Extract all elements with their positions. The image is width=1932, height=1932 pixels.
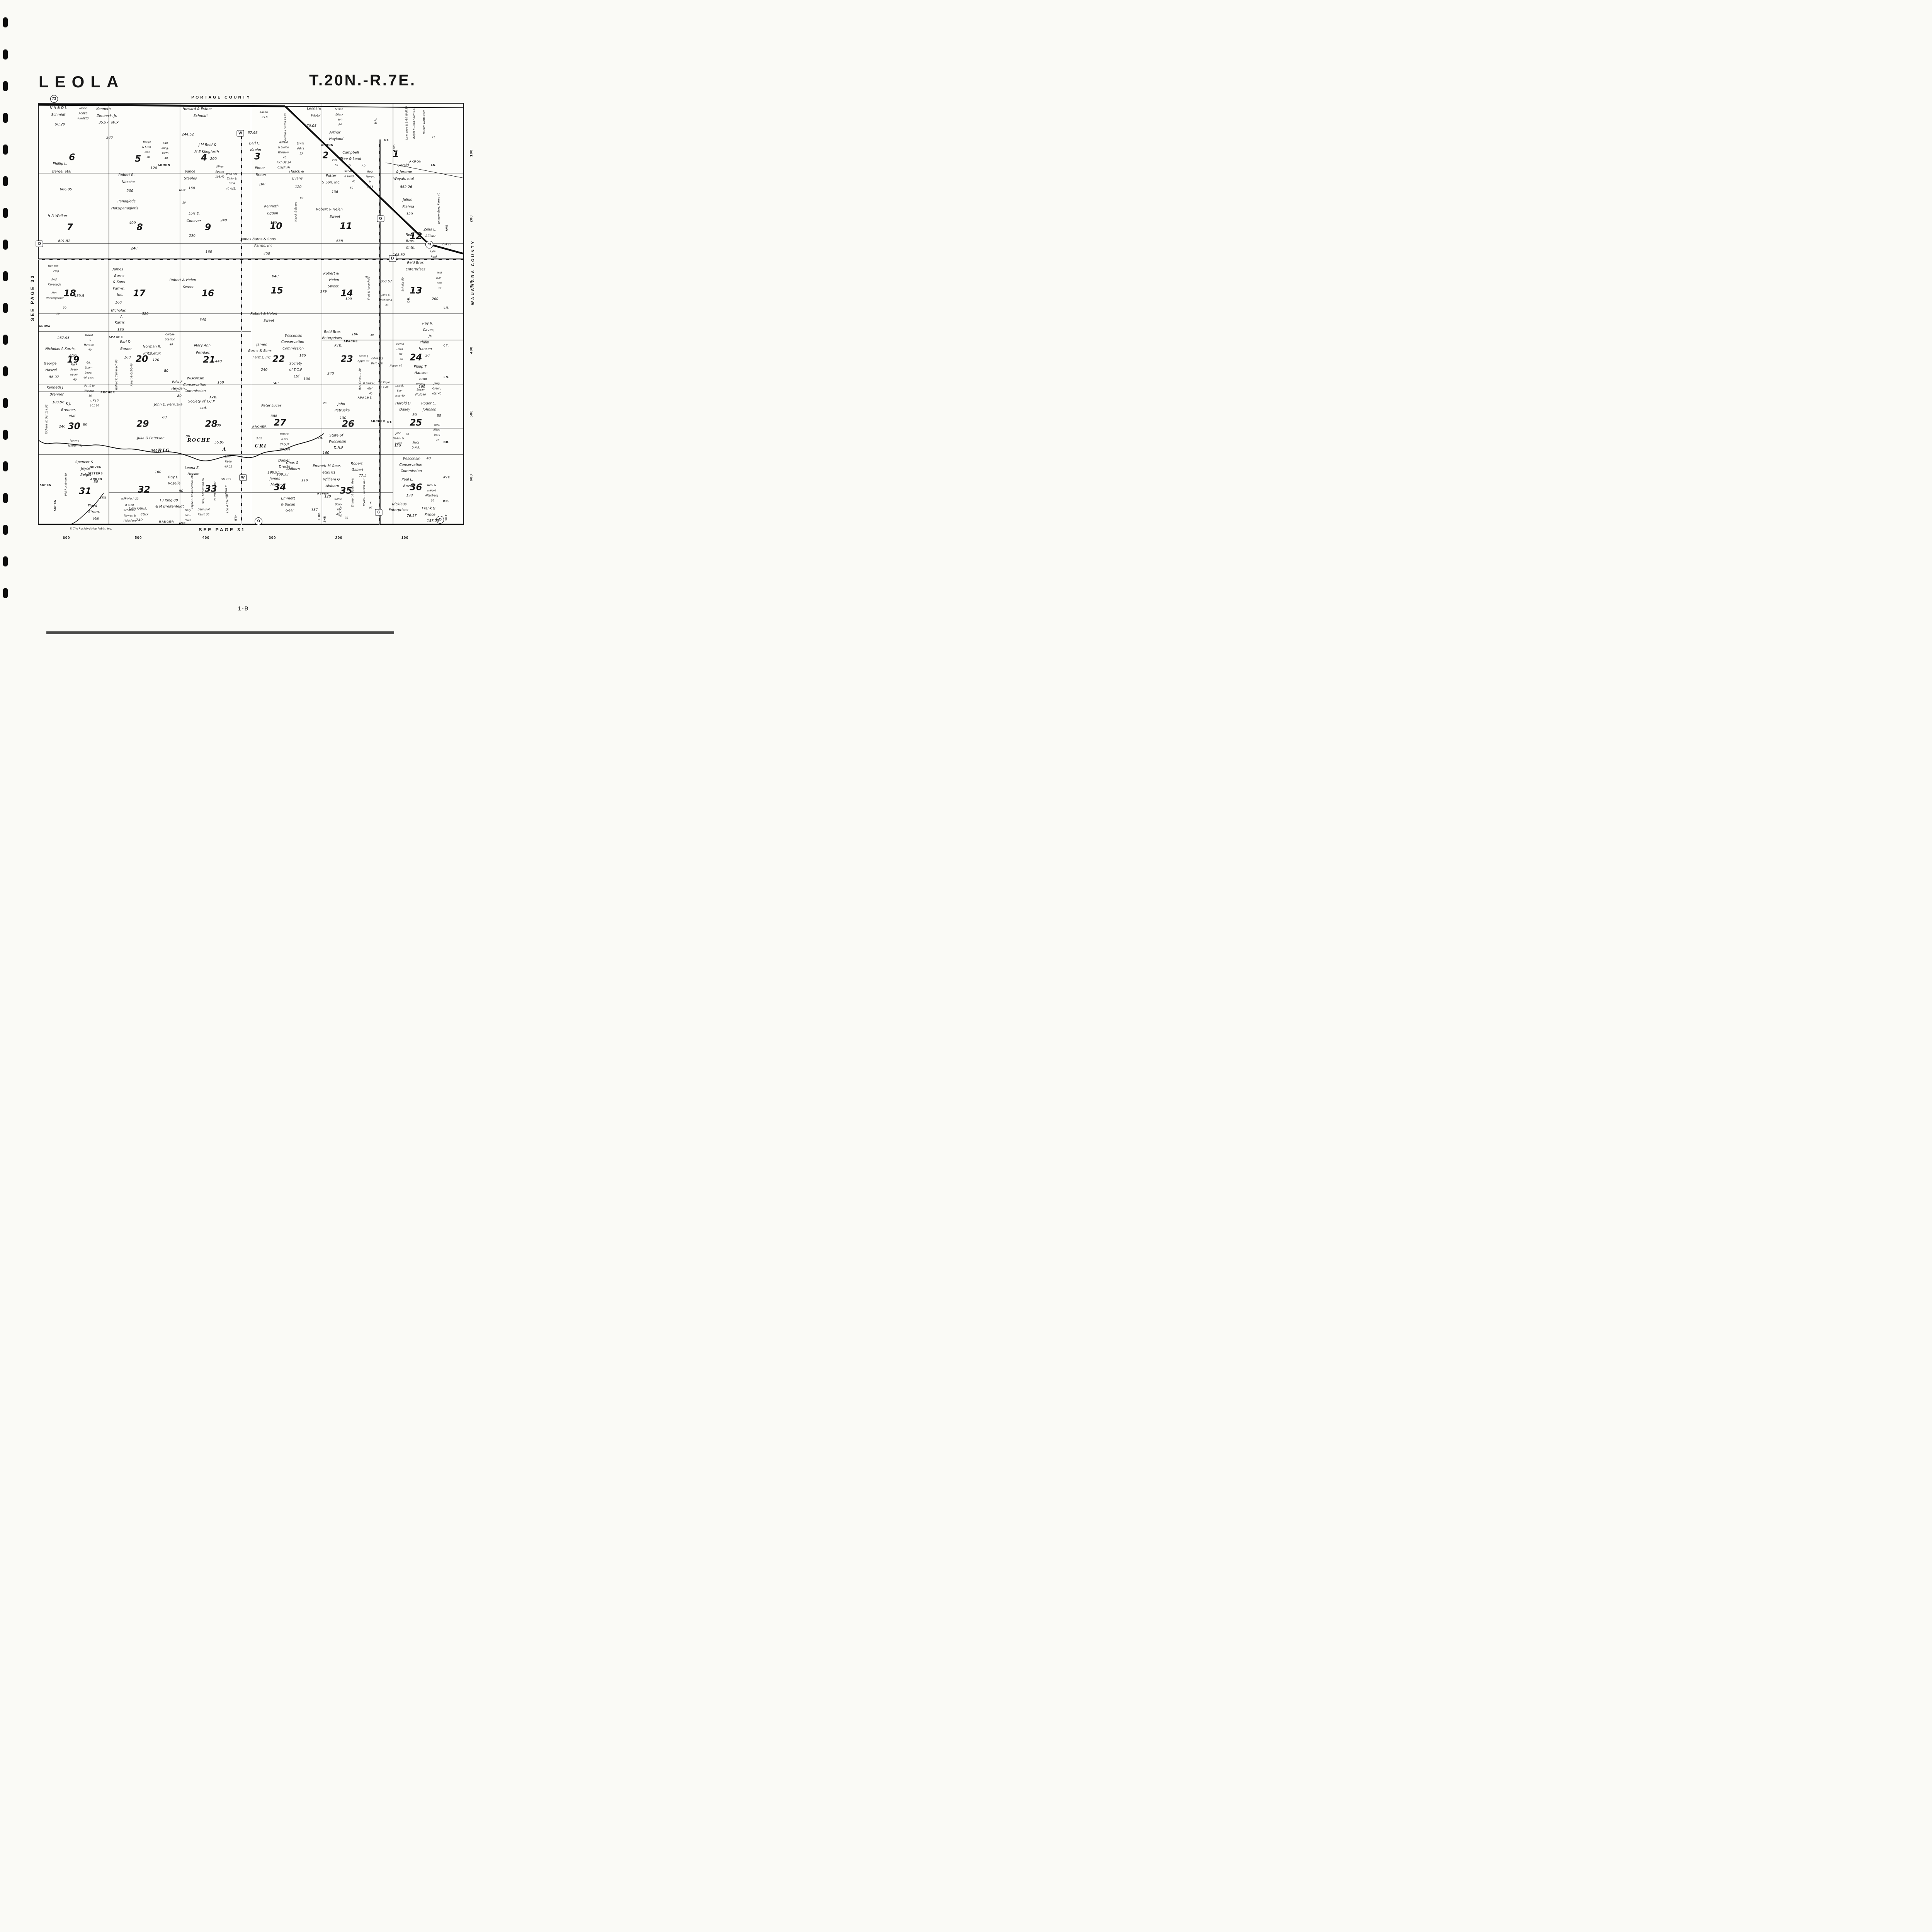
parcel-label: Schulte 59 [402, 277, 405, 291]
parcel-label: 130 [340, 417, 346, 420]
parcel-label: John E. Perruska [154, 403, 182, 406]
parcel-label: 3.02 [256, 437, 262, 440]
parcel-label: 40 [165, 157, 168, 160]
parcel-label: 388 [270, 415, 277, 418]
parcel-label: Lawrence & Sybil Wolf 33 [406, 106, 408, 140]
binder-hole [3, 556, 8, 566]
parcel-label: S E Coye [378, 381, 390, 384]
parcel-label: Co. [346, 164, 352, 167]
scale-number: 100 [401, 536, 409, 540]
road-label: CT. [387, 420, 393, 423]
parcel-label: & Hurd [344, 175, 354, 178]
parcel-label: Haszel [45, 369, 57, 372]
parcel-label: M E Klingfurth [194, 150, 219, 154]
parcel-label: Ahlborn [286, 468, 300, 471]
parcel-label: Paul L. [401, 478, 413, 482]
parcel-label: Gerald [397, 164, 409, 167]
parcel-label: Robert & Helen [170, 279, 196, 282]
road-label: SISTERS [88, 472, 103, 475]
parcel-label: 40 [283, 156, 286, 159]
section-number: 1 [393, 150, 399, 159]
scale-number: 500 [469, 410, 473, 418]
highway-marker-box: G [375, 509, 383, 516]
parcel-label: 160 [352, 333, 358, 336]
parcel-label: Willard [279, 141, 288, 144]
parcel-label: 77.5 [359, 474, 366, 478]
parcel-label: Hansen [84, 344, 94, 346]
road-label: AVE. [209, 396, 218, 399]
parcel-label: Petruska [335, 409, 350, 413]
parcel-label: 320 [142, 313, 148, 316]
parcel-label: & Sten- [142, 146, 152, 148]
section-number: 4 [201, 154, 207, 163]
parcel-label: Jerome [70, 439, 79, 442]
parcel-label: Woyak, etal [393, 177, 414, 181]
parcel-label: 240 [327, 372, 334, 376]
parcel-label: Kaehn [260, 111, 268, 114]
parcel-label: Braun [255, 173, 266, 177]
parcel-label: 80 [83, 423, 87, 427]
parcel-label: Enterprises [389, 509, 408, 512]
parcel-label: 168.67 [380, 280, 392, 284]
parcel-label: Vance [185, 170, 195, 174]
parcel-label: Susan [335, 108, 343, 111]
road-label: ARCHER [371, 420, 385, 423]
highway-marker-box: G [377, 216, 384, 222]
parcel-label: & M Breitenfeldt [155, 505, 184, 509]
parcel-label: John C. [381, 294, 391, 297]
parcel-label: & Elaine [278, 146, 289, 149]
scale-number: 400 [202, 536, 210, 540]
parcel-label: Pipp [53, 270, 59, 272]
parcel-label: W. Whitney 80 [214, 481, 216, 500]
parcel-label: K J. [66, 402, 71, 406]
parcel-label: 160 [206, 250, 212, 254]
parcel-label: Rod [51, 278, 56, 281]
parcel-label: 160 [189, 187, 195, 190]
parcel-label: 157.25 [427, 520, 439, 523]
parcel-label: Don Hill [48, 265, 58, 267]
parcel-label: James [270, 478, 280, 481]
parcel-label: D.N.R. [412, 447, 420, 449]
road-label: ASPEN [53, 499, 56, 511]
parcel-label: McKenna [380, 299, 392, 302]
parcel-label: A CRI [281, 438, 288, 441]
plat-map: PORTAGE COUNTY65432178910111218171615141… [38, 103, 464, 525]
parcel-label: Exca [229, 182, 235, 185]
parcel-label: Mark [71, 364, 77, 366]
section-number: 17 [133, 289, 145, 298]
parcel-label: 198.95 [267, 471, 280, 474]
parcel-label: Leslie J [359, 355, 368, 358]
parcel-label: 55.99 [214, 441, 224, 445]
parcel-label: Bovee [403, 485, 414, 488]
parcel-label: Wisconsin [329, 440, 346, 444]
parcel-label: L K J S [90, 400, 99, 402]
parcel-label: 30 [406, 433, 409, 436]
binder-hole [3, 303, 8, 313]
parcel-label: Nicklaus [392, 503, 406, 506]
parcel-label: L [90, 338, 91, 341]
parcel-label: Jr. [369, 181, 371, 184]
parcel-label: 160 [99, 497, 106, 500]
binder-hole [3, 271, 8, 281]
parcel-label: Sparks [215, 171, 224, 173]
parcel-label: Eggan [267, 212, 278, 216]
parcel-label: Helen [329, 279, 339, 282]
section-number: 35 [340, 486, 352, 495]
parcel-label: etal [69, 415, 75, 418]
road-label: 5TH [234, 514, 237, 521]
parcel-label: ROCHE [280, 433, 289, 436]
parcel-label: 200 [127, 190, 133, 193]
road-label: DR. [407, 296, 410, 303]
parcel-label: Potter [326, 175, 336, 178]
parcel-label: Luka- [396, 348, 404, 350]
parcel-label: Emmett M Gear, [313, 465, 341, 468]
parcel-label: Earl D [120, 341, 131, 344]
parcel-label: 160 [270, 222, 277, 225]
parcel-label: 70 [345, 517, 348, 519]
highway-marker-box: W [239, 474, 247, 481]
parcel-label: 120 [150, 167, 157, 170]
parcel-label: Karl [163, 142, 168, 145]
road-label: ASPEN [39, 484, 51, 487]
parcel-label: 75 [361, 164, 366, 167]
page-number: 1-B [238, 606, 249, 612]
road-label: SEE PAGE 31 [199, 527, 245, 532]
parcel-label: 71 [432, 136, 435, 139]
scale-number: 300 [469, 281, 473, 288]
parcel-label: 120 [324, 495, 331, 498]
parcel-label: Brenner, [61, 409, 76, 412]
parcel-label: Heyden [172, 388, 185, 391]
binder-hole [3, 49, 8, 60]
parcel-label: Society of T.C.P [188, 400, 215, 404]
parcel-label: Haack & [289, 170, 304, 174]
highway-marker-circle: O [255, 517, 262, 525]
parcel-label: 50 [350, 187, 353, 189]
road-label: SEVEN [90, 466, 102, 469]
parcel-label: etal [367, 388, 372, 390]
parcel-label: Enterprises [406, 268, 425, 272]
parcel-label: 120 [394, 444, 401, 448]
parcel-label: 19.49 [381, 386, 388, 389]
parcel-label: Phil F. Heimon 40 [65, 473, 67, 496]
parcel-label: Span- [85, 366, 92, 369]
parcel-label: sen [437, 282, 442, 285]
parcel-label: of T.C.P [289, 369, 302, 372]
parcel-label: 53 [299, 153, 303, 155]
parcel-label: 160 [218, 381, 224, 385]
parcel-label: Howard & Esther [182, 108, 212, 111]
road-label: AKRON [158, 163, 170, 167]
parcel-label: Enterprises [322, 337, 342, 340]
parcel-label: Ken [52, 292, 57, 294]
parcel-label: S [370, 502, 371, 505]
parcel-label: T J King 80 [160, 499, 178, 502]
parcel-label: 230 [189, 235, 196, 238]
section-number: 30 [68, 422, 80, 431]
parcel-label: Helen [396, 343, 404, 345]
parcel-label: Fred & Joyce Reid [368, 277, 371, 300]
parcel-label: NSP Mach 20 [121, 498, 139, 500]
parcel-label: State of [329, 434, 343, 437]
parcel-label: Wintergarden [46, 297, 65, 299]
parcel-label: Hansen [415, 371, 428, 375]
parcel-label: Sundra [344, 170, 354, 173]
parcel-label: Commission [185, 389, 206, 393]
parcel-label: 97 [369, 507, 372, 510]
parcel-label: Peter Lucas [261, 405, 281, 408]
parcel-label: Roger C. [421, 402, 436, 405]
parcel-label: James Burns & Sons [241, 238, 276, 241]
parcel-label: Robert & Helen [250, 313, 277, 316]
parcel-label: Scanlon [165, 338, 175, 341]
parcel-label: Kenneth [96, 108, 111, 111]
parcel-label: Haack & [393, 437, 404, 440]
parcel-label: Staples [184, 177, 197, 180]
parcel-label: Neal & [427, 484, 436, 487]
section-number: 6 [69, 153, 75, 162]
parcel-label: Julia D Peterson [137, 437, 165, 440]
parcel-label: Edward J [371, 357, 383, 360]
parcel-label: 40 etux [83, 377, 94, 379]
section-number: 24 [410, 353, 422, 362]
binder-hole [3, 366, 8, 376]
parcel-label: Pritzl,etux [143, 352, 161, 355]
parcel-label: 160 [299, 355, 306, 358]
parcel-label: 108.82 [393, 254, 405, 257]
parcel-label: Lois E. [189, 213, 200, 216]
parcel-label: Elmer [255, 167, 265, 170]
parcel-label: Wilfred F. Cattanach 80 [116, 360, 118, 390]
parcel-label: Nicholas A Karris, [45, 347, 76, 351]
parcel-label: 70.05 [306, 125, 316, 128]
parcel-label: © The Rockford Map Publs., Inc. [70, 528, 112, 531]
road-label: DR. [374, 118, 377, 124]
parcel-label: Gil. [87, 361, 91, 364]
parcel-label: 136 [332, 190, 338, 194]
parcel-label: ACRES [79, 112, 88, 115]
parcel-label: Kaehn [250, 149, 261, 152]
binder-hole [3, 398, 8, 408]
parcel-label: 638 [336, 240, 343, 243]
road-label: SEE PAGE 33 [30, 274, 35, 321]
parcel-label: Clifford C. [225, 485, 228, 498]
parcel-label: Caves, [423, 328, 434, 332]
parcel-label: Dailey [400, 408, 410, 412]
parcel-label: erns 40 [395, 395, 405, 398]
parcel-label: Richard W. Gyr 114.92 [46, 405, 48, 434]
parcel-label: Nowak & [124, 515, 136, 517]
creek-label: BIG [158, 448, 170, 453]
road-label: ASPEN [317, 492, 329, 495]
parcel-label: & Son, Inc. [322, 181, 341, 185]
section-number: 16 [202, 289, 214, 298]
parcel-label: 80 [179, 490, 183, 493]
parcel-label: Commission [401, 470, 422, 473]
scale-number: 400 [469, 347, 473, 354]
parcel-label: Victoria Lowton 19.80 [284, 113, 287, 141]
parcel-label: Inc. [117, 293, 123, 297]
parcel-label: 34 [385, 304, 389, 307]
parcel-label: 108.42 [215, 176, 224, 179]
parcel-label: 40 [369, 393, 372, 395]
scale-number: 600 [469, 474, 473, 481]
parcel-label: William G [323, 478, 340, 482]
parcel-label: 160 [155, 471, 161, 474]
section-number: 27 [274, 418, 286, 427]
parcel-label: Philip [420, 341, 429, 345]
parcel-label: 110 [301, 479, 308, 483]
parcel-label: 686.05 [60, 188, 72, 191]
parcel-label: 240 [59, 425, 65, 429]
road-label: LN. [444, 376, 449, 379]
road-label: ACRES [90, 478, 102, 481]
parcel-label: 80 [162, 416, 167, 419]
parcel-label: Winslow [278, 151, 289, 154]
section-number: 2 [323, 151, 329, 160]
parcel-label: Ralph & Dora Adams 33 [413, 107, 416, 139]
parcel-label: Campbell [342, 151, 359, 155]
parcel-label: 40 [436, 439, 439, 442]
parcel-label: George [44, 362, 57, 366]
parcel-label: Allison [425, 235, 437, 238]
parcel-label: 20 [425, 354, 429, 358]
parcel-label: Lois B. [395, 384, 404, 387]
parcel-label: Reid Bros. [407, 261, 425, 265]
parcel-label: TROUT [280, 443, 289, 446]
parcel-label: Kavanagh [48, 283, 61, 286]
parcel-label: 200 [210, 158, 217, 161]
parcel-label: Wisconsin [285, 334, 302, 338]
county-label: WAUSHARA COUNTY [471, 240, 475, 305]
parcel-label: Leonard [307, 107, 321, 111]
parcel-label: 160 [323, 452, 329, 455]
parcel-label: John [338, 403, 345, 406]
parcel-label: 10 [56, 313, 60, 316]
parcel-label: etal 40 [432, 393, 442, 395]
section-number: 21 [203, 356, 215, 365]
parcel-label: 80 [177, 395, 181, 398]
parcel-label: Nitsche [122, 181, 135, 184]
binder-hole [3, 335, 8, 345]
parcel-label: 640 [199, 319, 206, 322]
parcel-label: Bryan L. Walsch 70.3 [363, 478, 366, 506]
section-number: 11 [340, 222, 352, 231]
parcel-label: Evans [292, 177, 303, 180]
parcel-label: 199 [406, 494, 413, 497]
parcel-label: Zimbeck, Jr. [97, 114, 117, 118]
parcel-label: Edwin [224, 456, 232, 458]
parcel-label: 80 [412, 414, 417, 417]
parcel-label: 57.93 [248, 131, 258, 135]
parcel-label: Edw Guus, [129, 507, 147, 510]
parcel-label: 34.8 [367, 186, 373, 189]
parcel-label: berg [434, 434, 440, 437]
parcel-label: Johnson Bros. Farms 40 [438, 193, 440, 224]
parcel-label: Reid [431, 255, 437, 258]
parcel-label: 35.97, etux [99, 121, 119, 125]
binder-hole [3, 145, 8, 155]
county-label: PORTAGE COUNTY [191, 95, 251, 100]
road-label: AVE. [445, 223, 448, 231]
parcel-label: 459.5 [74, 295, 84, 298]
parcel-label: 400 [264, 253, 270, 256]
parcel-label: STREAM [279, 448, 290, 451]
parcel-label: Lyle [430, 250, 436, 253]
parcel-label: 399 [151, 449, 158, 453]
parcel-label: 10 [182, 201, 186, 204]
parcel-label: Spencer & [75, 461, 94, 464]
parcel-label: Robert [351, 462, 362, 466]
section-number: 14 [341, 289, 353, 298]
parcel-label: Jerry [434, 383, 440, 385]
parcel-label: Frank G [422, 507, 435, 510]
parcel-label: Hansen [419, 347, 432, 351]
binder-hole [3, 525, 8, 535]
parcel-label: Conservation [281, 341, 304, 344]
parcel-label: 80 [300, 197, 303, 199]
highway-marker-box: W [236, 130, 244, 136]
section-number: 26 [342, 420, 354, 429]
parcel-label: Sarah [335, 498, 342, 501]
parcel-label: 601.52 [58, 240, 71, 243]
scale-number: 200 [335, 536, 343, 540]
parcel-label: 280 [106, 136, 113, 139]
parcel-label: Ray Caves, Jr 80 [359, 368, 361, 390]
parcel-label: Leona E. [185, 466, 200, 470]
parcel-label: James [113, 268, 123, 272]
parcel-label: etux [419, 378, 427, 381]
parcel-label: Rada [225, 461, 231, 463]
parcel-label: Neal [434, 424, 440, 427]
parcel-label: Conservation [183, 383, 206, 387]
parcel-label: 70 [364, 276, 368, 279]
parcel-label: 80 [437, 415, 441, 418]
parcel-label: Conservation [399, 464, 422, 467]
parcel-label: Robt [367, 171, 373, 173]
parcel-label: 80 [94, 480, 98, 484]
parcel-label: Lois J. Stevenson 80 [202, 478, 205, 504]
parcel-label: John [396, 432, 401, 435]
parcel-label: Earl C. [249, 142, 260, 145]
scale-number: 300 [269, 536, 276, 540]
road-label: LN. [444, 306, 449, 309]
parcel-label: Nepco 40 [389, 365, 402, 367]
parcel-label: Emmett [281, 497, 295, 501]
parcel-label: 240 [261, 369, 267, 372]
parcel-label: Prince [425, 513, 435, 517]
road-label: CT. [384, 138, 389, 141]
parcel-label: 160 [259, 183, 265, 186]
parcel-label: Roy L [168, 476, 178, 479]
parcel-label: Han- [436, 277, 442, 280]
road-label: AKRON [321, 143, 334, 146]
parcel-label: 40 [88, 349, 92, 352]
section-number: 5 [135, 155, 141, 164]
road-label: AVE [179, 522, 186, 525]
parcel-label: Robert R. [118, 173, 134, 177]
road-label: DR. [444, 440, 450, 444]
parcel-label: Erick- [335, 113, 343, 116]
parcel-label: 40 AVE. [226, 187, 236, 190]
parcel-label: Farms, Inc [254, 245, 272, 248]
parcel-label: Berge, etal [52, 170, 71, 174]
road-label: 3 RD [318, 512, 321, 520]
parcel-label: 94 [338, 123, 342, 126]
